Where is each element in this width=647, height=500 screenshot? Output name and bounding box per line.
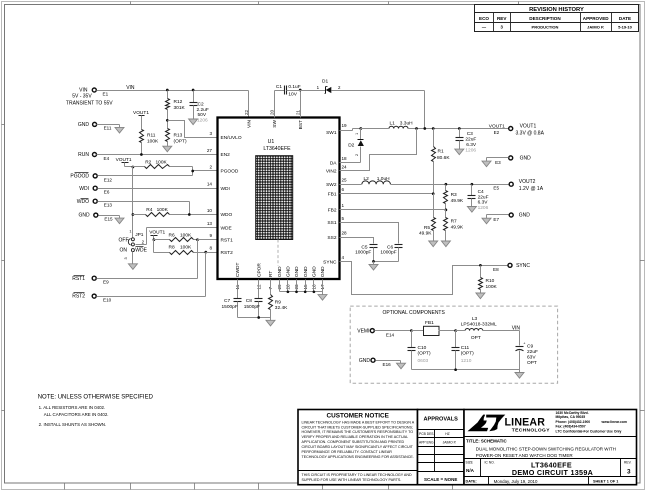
svg-text:R10: R10	[486, 278, 495, 284]
svg-text:1000pF: 1000pF	[380, 249, 396, 255]
svg-text:R5: R5	[424, 225, 430, 231]
svg-text:RST2: RST2	[72, 294, 85, 300]
svg-text:8: 8	[209, 245, 212, 250]
svg-text:THIS CIRCUIT IS PROPRIETARY TO: THIS CIRCUIT IS PROPRIETARY TO LINEAR TE…	[302, 473, 412, 477]
svg-text:100K: 100K	[156, 160, 168, 166]
svg-text:D1: D1	[322, 79, 328, 85]
svg-text:GND: GND	[286, 266, 292, 277]
svg-text:GND: GND	[303, 266, 309, 277]
svg-text:1206: 1206	[478, 205, 489, 211]
svg-text:5V - 35V: 5V - 35V	[72, 93, 92, 99]
svg-text:1500pF: 1500pF	[244, 304, 260, 310]
svg-text:GND: GND	[277, 266, 283, 277]
svg-text:APPROVED: APPROVED	[583, 16, 609, 21]
svg-text:DATE: DATE	[619, 16, 631, 21]
svg-text:R4: R4	[146, 207, 152, 213]
svg-text:10V: 10V	[288, 92, 297, 98]
svg-text:L2: L2	[364, 176, 370, 182]
svg-text:16: 16	[312, 284, 317, 290]
svg-text:28: 28	[342, 230, 348, 235]
svg-text:R11: R11	[147, 133, 156, 139]
svg-text:E7: E7	[493, 217, 499, 222]
svg-text:49.9K: 49.9K	[451, 198, 464, 204]
svg-text:CWDT: CWDT	[235, 263, 241, 277]
svg-text:1: 1	[342, 203, 345, 208]
svg-text:ON: ON	[120, 248, 128, 254]
svg-text:CIRCUIT THAT MEETS CUSTOMER-SU: CIRCUIT THAT MEETS CUSTOMER-SUPPLIED SPE…	[302, 425, 413, 429]
svg-text:100K: 100K	[147, 139, 159, 145]
svg-text:CUSTOMER NOTICE: CUSTOMER NOTICE	[327, 412, 390, 419]
svg-text:FB2: FB2	[328, 208, 337, 214]
svg-text:50V: 50V	[198, 112, 207, 118]
svg-text:E6: E6	[104, 190, 110, 195]
svg-text:R1: R1	[438, 149, 444, 155]
svg-text:LINEAR TECHNOLOGY HAS MADE A B: LINEAR TECHNOLOGY HAS MADE A BEST EFFORT…	[302, 420, 415, 424]
svg-text:TRANSIENT TO 55V: TRANSIENT TO 55V	[66, 101, 113, 107]
svg-text:19: 19	[342, 123, 348, 128]
svg-text:E10: E10	[103, 298, 112, 303]
svg-text:R3: R3	[451, 192, 457, 198]
svg-text:GND: GND	[78, 122, 90, 128]
svg-text:22uF: 22uF	[465, 137, 476, 143]
svg-text:E12: E12	[104, 177, 113, 182]
svg-text:SIZE: SIZE	[466, 461, 474, 465]
svg-text:3.3uH: 3.3uH	[400, 120, 413, 126]
svg-text:C10: C10	[418, 345, 427, 351]
svg-text:2.2uF: 2.2uF	[197, 107, 209, 113]
svg-text:E13: E13	[104, 203, 113, 208]
svg-text:GND: GND	[519, 213, 531, 219]
svg-text:VIN: VIN	[126, 85, 135, 91]
svg-text:DUAL MONOLITHIC STEP-DOWN SWIT: DUAL MONOLITHIC STEP-DOWN SWITCHING REGU…	[476, 447, 616, 452]
svg-text:FB1: FB1	[328, 191, 337, 197]
svg-text:C2: C2	[198, 102, 204, 108]
svg-text:REVISION HISTORY: REVISION HISTORY	[529, 7, 584, 13]
svg-text:2: 2	[209, 164, 212, 169]
svg-text:C11: C11	[461, 345, 470, 351]
svg-text:C9: C9	[527, 344, 533, 350]
svg-text:APPROVALS: APPROVALS	[423, 417, 458, 423]
svg-text:VOUT1: VOUT1	[520, 124, 537, 130]
svg-text:GND: GND	[78, 213, 90, 219]
svg-text:24: 24	[342, 164, 348, 169]
svg-text:E8: E8	[493, 267, 499, 272]
svg-text:Phone: (408)432-1900: Phone: (408)432-1900	[556, 420, 591, 424]
svg-text:GND: GND	[312, 266, 318, 277]
svg-text:R8: R8	[169, 245, 175, 251]
svg-text:C3: C3	[467, 131, 473, 137]
svg-text:100K: 100K	[180, 232, 192, 238]
svg-text:Monday, July 19, 2010: Monday, July 19, 2010	[494, 479, 538, 484]
svg-text:1206: 1206	[465, 148, 476, 154]
svg-text:PGOOD: PGOOD	[221, 169, 239, 175]
svg-text:WDE: WDE	[221, 225, 232, 231]
svg-text:WDI: WDI	[221, 186, 230, 192]
svg-text:ECO: ECO	[479, 16, 489, 21]
svg-text:POWER-ON RESET AND WATCH DOG T: POWER-ON RESET AND WATCH DOG TIMER	[476, 453, 574, 458]
svg-text:DEMO CIRCUIT 1359A: DEMO CIRCUIT 1359A	[512, 468, 593, 477]
svg-text:HOWEVER, IT REMAINS THE CUSTOM: HOWEVER, IT REMAINS THE CUSTOMER'S RESPO…	[302, 430, 414, 434]
svg-text:22uF: 22uF	[527, 349, 538, 355]
svg-text:6.3V: 6.3V	[466, 142, 477, 148]
svg-text:10: 10	[207, 208, 213, 213]
svg-text:SYNC: SYNC	[323, 259, 337, 265]
svg-text:SW: SW	[272, 120, 278, 128]
svg-text:C8: C8	[246, 298, 252, 304]
svg-text:CPOR: CPOR	[256, 263, 262, 277]
svg-text:6: 6	[342, 187, 345, 192]
svg-text:U1: U1	[268, 139, 275, 145]
svg-text:80.6K: 80.6K	[437, 155, 450, 161]
svg-text:LINEAR: LINEAR	[505, 417, 546, 429]
svg-text:DA: DA	[330, 161, 337, 167]
svg-text:SCALE = NONE: SCALE = NONE	[424, 477, 457, 482]
svg-text:2: 2	[355, 154, 359, 156]
svg-text:63V: 63V	[527, 355, 536, 361]
svg-text:0.1uF: 0.1uF	[288, 84, 300, 90]
svg-text:22uF: 22uF	[478, 194, 489, 200]
svg-text:CIRCUIT BOARD LAYOUT MAY SIGNI: CIRCUIT BOARD LAYOUT MAY SIGNIFICANTLY A…	[302, 445, 414, 449]
svg-text:FB1: FB1	[425, 320, 434, 326]
svg-text:E9: E9	[103, 280, 109, 285]
svg-text:4: 4	[342, 255, 345, 260]
svg-text:301K: 301K	[174, 105, 186, 111]
svg-text:E14: E14	[386, 333, 395, 338]
svg-text:26: 26	[286, 284, 291, 290]
svg-text:1.0uH: 1.0uH	[377, 176, 390, 182]
svg-text:E4: E4	[104, 156, 110, 161]
svg-text:1.2V @ 1A: 1.2V @ 1A	[519, 186, 544, 192]
svg-text:49.9K: 49.9K	[419, 231, 432, 237]
svg-text:PGOOD: PGOOD	[70, 174, 89, 180]
svg-text:APP ENG.: APP ENG.	[419, 440, 435, 444]
svg-text:TITLE: SCHEMATIC: TITLE: SCHEMATIC	[466, 439, 507, 444]
svg-text:RST1: RST1	[72, 276, 85, 282]
svg-text:SHEET 1 OF 1: SHEET 1 OF 1	[593, 479, 618, 483]
svg-text:3: 3	[627, 469, 631, 476]
svg-text:E1: E1	[103, 91, 109, 96]
svg-text:OFF: OFF	[119, 238, 129, 244]
svg-text:13: 13	[207, 221, 213, 226]
svg-text:RUN: RUN	[78, 152, 89, 158]
svg-text:Fax: (408)434-0507: Fax: (408)434-0507	[556, 424, 586, 428]
svg-text:25: 25	[342, 178, 348, 183]
svg-text:R2: R2	[145, 160, 151, 166]
svg-text:GND: GND	[359, 358, 371, 364]
svg-text:C7: C7	[224, 298, 230, 304]
svg-text:20: 20	[270, 109, 275, 115]
svg-text:0603: 0603	[418, 358, 429, 364]
svg-text:D2: D2	[348, 142, 354, 148]
svg-text:GND: GND	[520, 156, 532, 162]
svg-text:EN/UVLO: EN/UVLO	[221, 135, 242, 141]
svg-text:L1: L1	[390, 120, 396, 126]
svg-text:WDO: WDO	[221, 212, 233, 218]
svg-text:1. ALL RESISTORS ARE IN 0402.: 1. ALL RESISTORS ARE IN 0402.	[39, 405, 106, 410]
svg-text:EN2: EN2	[221, 152, 231, 158]
svg-text:100K: 100K	[157, 207, 169, 213]
svg-text:100K: 100K	[180, 245, 192, 251]
svg-text:14: 14	[207, 182, 213, 187]
svg-text:6.3V: 6.3V	[478, 200, 489, 206]
svg-text:E2: E2	[494, 130, 500, 135]
svg-text:1210: 1210	[461, 358, 472, 364]
svg-text:VIN: VIN	[246, 119, 252, 128]
svg-text:VOUT1: VOUT1	[489, 123, 505, 129]
svg-text:JAIMO P.: JAIMO P.	[587, 25, 604, 30]
svg-text:Milpitas, CA 95035: Milpitas, CA 95035	[556, 415, 586, 419]
svg-text:C1: C1	[276, 84, 282, 90]
svg-text:N/A: N/A	[466, 468, 475, 473]
svg-text:2. INSTALL SHUNTS AS SHOWN.: 2. INSTALL SHUNTS AS SHOWN.	[39, 422, 107, 427]
svg-text:3: 3	[124, 257, 128, 259]
svg-text:LTC Confidential-For Customer: LTC Confidential-For Customer Use Only	[556, 429, 622, 433]
svg-text:WDE: WDE	[135, 248, 147, 254]
svg-text:18: 18	[342, 156, 348, 161]
svg-text:1500pF: 1500pF	[222, 304, 238, 310]
svg-text:3.3V @ 0.8A: 3.3V @ 0.8A	[516, 130, 545, 136]
svg-text:VEMI: VEMI	[357, 328, 369, 334]
svg-text:E3: E3	[495, 160, 501, 165]
svg-text:VERIFY PROPER AND RELIABLE OPE: VERIFY PROPER AND RELIABLE OPERATION IN …	[302, 435, 409, 439]
svg-text:ALL CAPACITORS ARE IN 0402.: ALL CAPACITORS ARE IN 0402.	[44, 412, 109, 417]
svg-text:JP1: JP1	[135, 232, 144, 238]
svg-text:DESCRIPTION: DESCRIPTION	[529, 16, 561, 21]
svg-text:49.9K: 49.9K	[451, 225, 464, 231]
svg-text:E15: E15	[104, 217, 113, 222]
svg-text:9: 9	[209, 233, 212, 238]
svg-text:R6: R6	[169, 232, 175, 238]
svg-text:LT3640EFE: LT3640EFE	[263, 146, 291, 152]
svg-text:DATE:: DATE:	[466, 479, 477, 483]
svg-text:22: 22	[244, 109, 249, 115]
svg-text:TECHNOLOGY APPLICATIONS ENGINE: TECHNOLOGY APPLICATIONS ENGINEERING FOR …	[302, 455, 414, 459]
svg-text:SUPPLIED FOR USE WITH LINEAR T: SUPPLIED FOR USE WITH LINEAR TECHNOLOGY …	[302, 478, 402, 482]
svg-text:5: 5	[342, 216, 345, 221]
svg-text:REV: REV	[497, 16, 507, 21]
svg-text:SW1: SW1	[326, 130, 337, 136]
svg-text:RST1: RST1	[221, 237, 234, 243]
svg-text:SS1: SS1	[327, 220, 336, 226]
svg-text:3: 3	[209, 131, 212, 136]
svg-text:VOUT1: VOUT1	[149, 230, 165, 236]
svg-text:SW2: SW2	[326, 182, 337, 188]
svg-text:1206: 1206	[197, 117, 208, 123]
svg-text:OPT: OPT	[527, 360, 537, 366]
svg-text:HZ: HZ	[445, 432, 449, 436]
svg-text:1000pF: 1000pF	[355, 249, 371, 255]
svg-text:R13: R13	[174, 133, 183, 139]
svg-text:BST: BST	[298, 120, 304, 129]
svg-text:E11: E11	[104, 126, 112, 131]
svg-text:100K: 100K	[486, 284, 498, 290]
svg-text:WDO: WDO	[77, 199, 89, 205]
svg-text:R7: R7	[451, 219, 457, 225]
svg-text:RT: RT	[268, 271, 274, 277]
svg-text:SS2: SS2	[327, 235, 336, 241]
svg-text:OPT: OPT	[471, 335, 481, 341]
svg-text:IC NO.: IC NO.	[485, 461, 495, 465]
svg-text:TECHNOLOGY: TECHNOLOGY	[512, 428, 550, 434]
svg-text:E16: E16	[383, 362, 392, 367]
svg-text:OPTIONAL COMPONENTS: OPTIONAL COMPONENTS	[383, 310, 446, 316]
svg-text:E5: E5	[493, 186, 499, 191]
svg-text:JAIMO P.: JAIMO P.	[443, 440, 457, 444]
svg-text:www.linear.com: www.linear.com	[601, 420, 628, 424]
svg-text:GND: GND	[294, 266, 300, 277]
svg-text:R12: R12	[174, 99, 183, 105]
svg-text:1: 1	[129, 230, 131, 234]
svg-text:PERFORMANCE OR RELIABILITY. C: PERFORMANCE OR RELIABILITY. CONTACT LINE…	[302, 450, 393, 454]
svg-text:1: 1	[355, 133, 359, 135]
svg-text:PCB DES.: PCB DES.	[419, 432, 434, 436]
svg-text:APPLICATION. COMPONENT SUBSTI: APPLICATION. COMPONENT SUBSTITUTION AND …	[302, 440, 405, 444]
svg-text:RST2: RST2	[221, 250, 234, 256]
svg-text:SYNC: SYNC	[516, 263, 530, 269]
svg-text:LPS4018-332ML: LPS4018-332ML	[461, 322, 497, 328]
svg-text:R9: R9	[275, 299, 281, 305]
svg-text:21: 21	[295, 109, 300, 115]
svg-text:VIN2: VIN2	[326, 169, 337, 175]
svg-text:(OPT): (OPT)	[418, 351, 431, 357]
svg-text:27: 27	[207, 148, 213, 153]
svg-text:32.4K: 32.4K	[275, 305, 288, 311]
svg-text:VOUT2: VOUT2	[519, 179, 536, 185]
svg-text:GND: GND	[320, 266, 326, 277]
svg-text:PRODUCTION: PRODUCTION	[532, 25, 559, 30]
svg-text:(OPT): (OPT)	[461, 351, 474, 357]
svg-text:5-19-10: 5-19-10	[618, 25, 633, 30]
svg-text:L3: L3	[472, 316, 478, 322]
svg-text:C4: C4	[478, 189, 484, 195]
svg-text:NOTE: UNLESS OTHERWISE SPECIFI: NOTE: UNLESS OTHERWISE SPECIFIED	[38, 394, 154, 400]
svg-text:(OPT): (OPT)	[174, 139, 187, 145]
svg-text:WDI: WDI	[79, 186, 89, 192]
svg-text:VIN: VIN	[512, 325, 521, 331]
svg-text:VOUT1: VOUT1	[133, 110, 149, 116]
svg-text:REV.: REV.	[624, 461, 632, 465]
